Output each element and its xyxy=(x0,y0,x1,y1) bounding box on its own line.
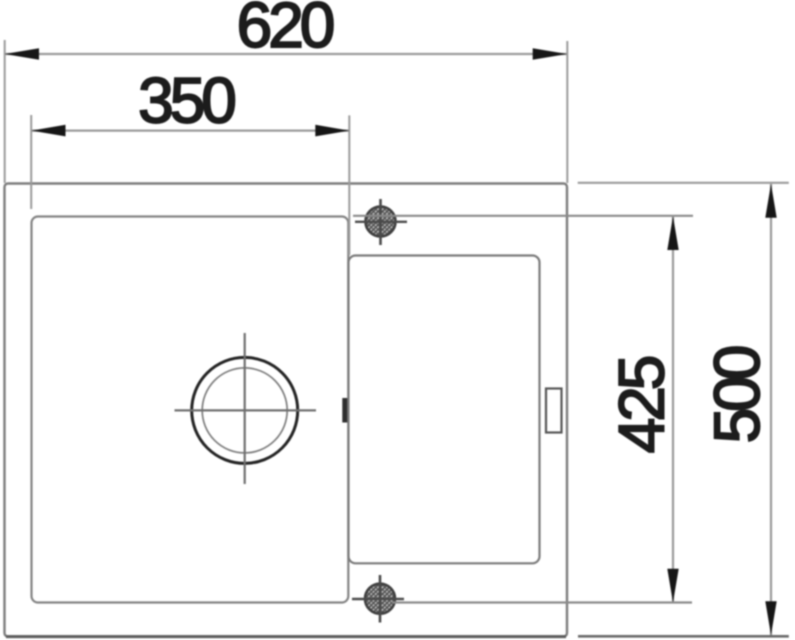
svg-text:425: 425 xyxy=(606,357,678,453)
svg-text:500: 500 xyxy=(701,346,773,443)
svg-text:620: 620 xyxy=(237,0,334,61)
svg-text:350: 350 xyxy=(138,65,235,137)
